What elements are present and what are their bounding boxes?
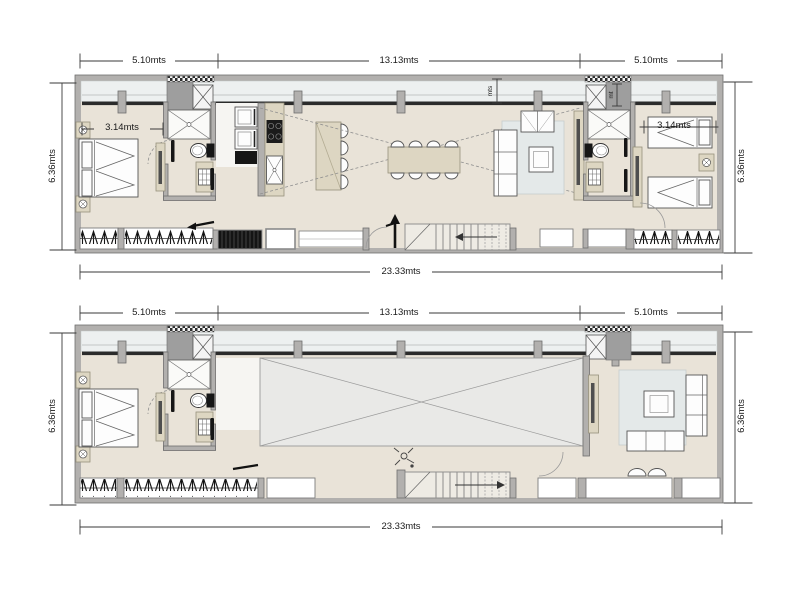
floor-plan-document: 5.10mts 13.13mts 5.10mts 6.36mts 6.36mts… [0,0,800,602]
cabinet [682,478,720,498]
floor-grille [218,230,262,249]
dim-label-duct-depth: mt [608,83,616,107]
double-bed-symbol [79,139,138,197]
coffee-table [529,147,553,172]
staircase-lower [397,470,510,498]
sink-symbol [196,162,213,192]
dim-label-lower-right: 6.36mts [736,386,748,446]
door-leaf [624,169,628,192]
cooktop [267,120,283,143]
shower-symbol [588,110,630,139]
door-leaf [171,140,175,162]
landing [216,358,260,430]
dining-table [388,147,460,173]
dim-label-lower-left: 6.36mts [47,386,59,446]
dim-label-upper-top-right: 5.10mts [625,55,677,67]
floor-plan-lower [50,306,752,534]
floor-plan-drawing [0,0,800,602]
double-height-void [260,358,583,446]
duct-shaft-left [167,76,214,110]
dim-label-balcony-depth: mts [487,79,495,103]
bench-sofa [627,431,684,451]
dim-label-lower-top-left: 5.10mts [123,307,175,319]
counter-dark [235,151,257,164]
cabinet [267,478,315,498]
sofa [686,375,707,436]
toilet-symbol [191,144,215,158]
dim-label-upper-right: 6.36mts [736,136,748,196]
coffee-table [644,391,674,417]
dim-label-lower-top-center: 13.13mts [369,307,429,319]
door-leaf [624,138,628,157]
cabinet [538,478,576,498]
cabinet [588,229,626,247]
single-bed-symbol [648,177,712,208]
dim-label-upper-left: 6.36mts [47,136,59,196]
dim-label-upper-top-center: 13.13mts [369,55,429,67]
dim-label-bedroom-left: 3.14mts [94,122,150,134]
cabinet [540,229,573,247]
sofa [494,130,517,196]
cabinet [586,478,672,498]
dim-label-lower-top-right: 5.10mts [625,307,677,319]
dim-label-bedroom-right: 3.14mts [646,120,702,132]
dim-label-upper-top-left: 5.10mts [123,55,175,67]
shower-symbol [168,110,210,139]
dim-label-lower-bottom: 23.33mts [370,521,432,533]
kitchen-sink [267,156,283,184]
sink-symbol [586,162,603,192]
cabinet [266,229,295,249]
door-leaf [211,168,215,190]
dim-label-upper-bottom: 23.33mts [370,266,432,278]
dining-set [388,141,460,179]
toilet-symbol [585,144,609,158]
loveseat [521,111,554,132]
